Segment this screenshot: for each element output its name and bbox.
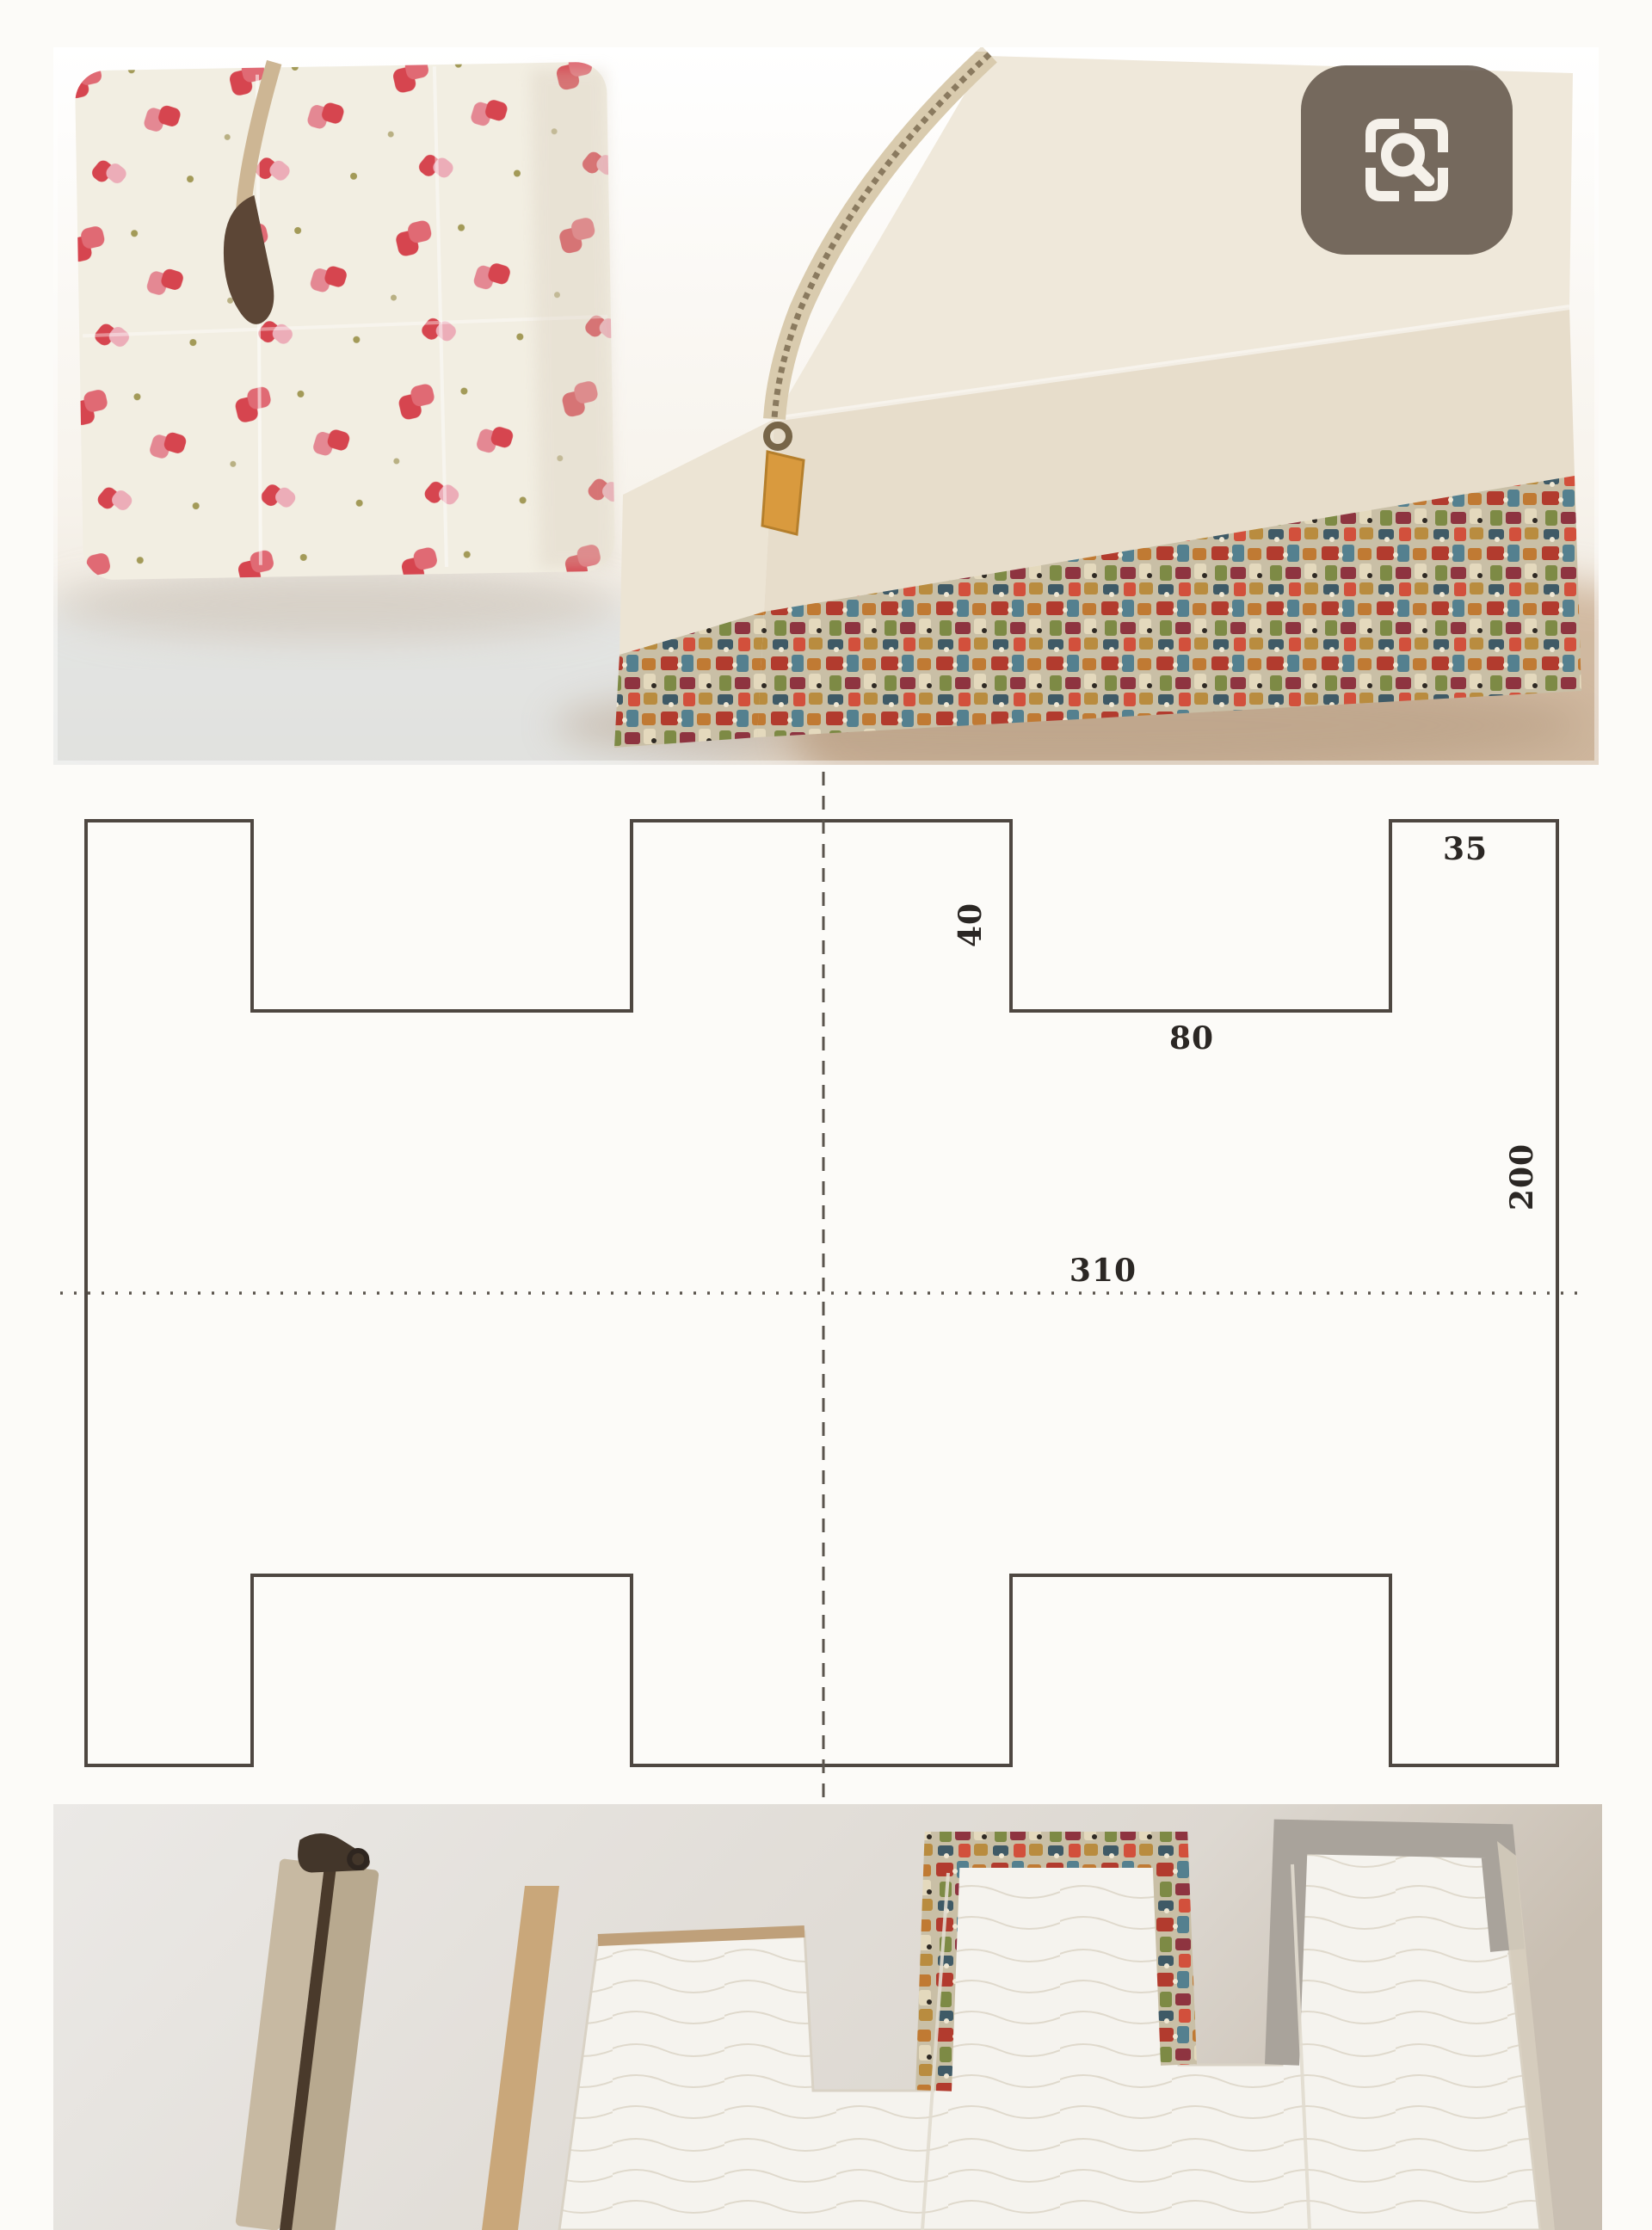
dim-label-total-height: 200 (1504, 1143, 1540, 1210)
visual-search-button[interactable] (1301, 65, 1513, 255)
magnifier-handle (1416, 168, 1429, 181)
search-lens-icon (1342, 95, 1471, 225)
pouch-left-floral (75, 57, 615, 581)
binding-tan (598, 1931, 804, 1940)
dim-label-notch-width: 80 (1169, 1020, 1214, 1056)
dim-label-total-width: 310 (1069, 1253, 1137, 1289)
dim-label-tab-width: 35 (1443, 831, 1488, 867)
dim-label-notch-depth: 40 (952, 902, 989, 947)
bottom-photo-cut-pieces (53, 1804, 1602, 2230)
pinterest-pin-page: { "visual_search_button": { "icon": "mag… (0, 0, 1652, 2230)
sewing-pattern-diagram: 35 40 80 310 200 (0, 765, 1652, 1810)
pattern-outline (86, 821, 1557, 1765)
pouch-right-leather-pull (762, 452, 804, 534)
